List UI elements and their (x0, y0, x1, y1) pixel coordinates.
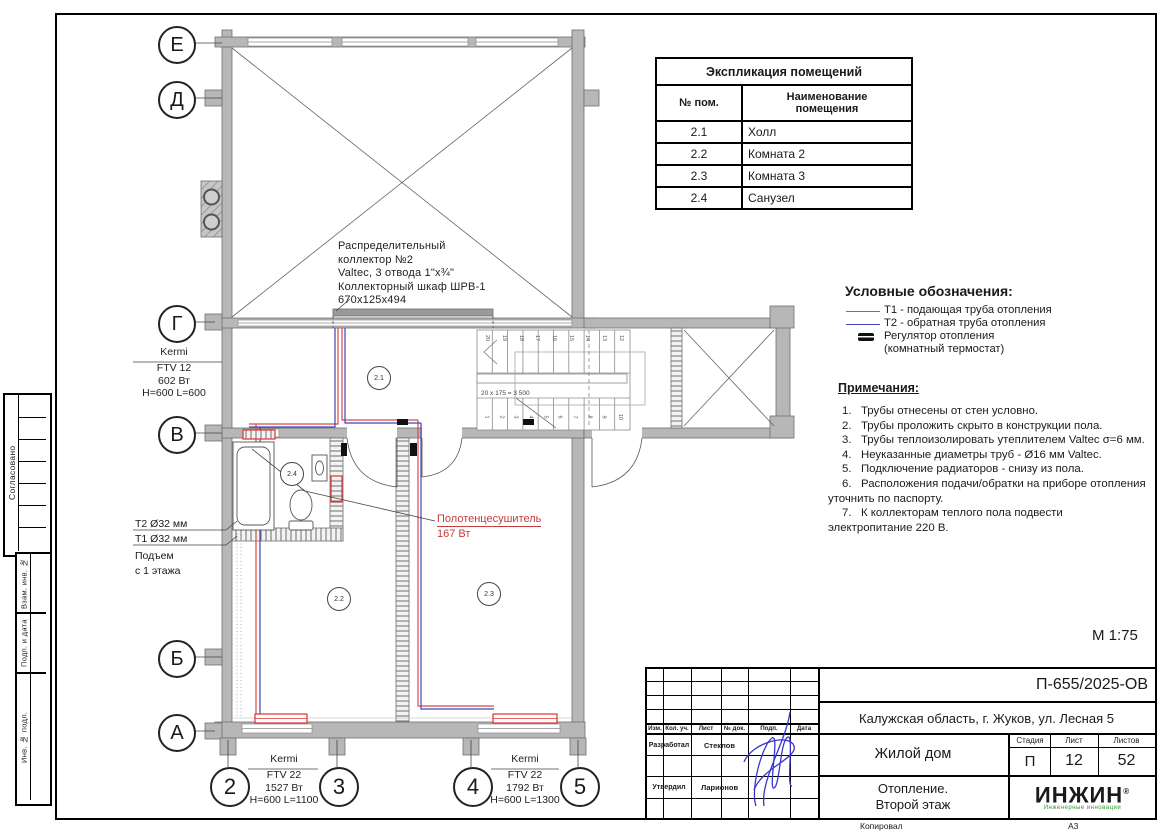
tb-stage-label: Стадия (1010, 733, 1050, 747)
axis-row-B: Б (158, 640, 196, 678)
tb-sheet-title-line2: Второй этаж (876, 797, 951, 813)
axis-label: А (170, 722, 183, 745)
repeat-item: 20 (484, 335, 490, 341)
room-number: 2.4 (656, 187, 742, 209)
repeat-item: 13 (601, 335, 607, 341)
legend-thermostat-label2: (комнатный термостат) (884, 343, 1004, 355)
axis-row-D: Д (158, 81, 196, 119)
radiator-label-room3: Kermi FTV 22 1792 Вт H=600 L=1300 (479, 753, 571, 806)
logo-reg-mark: ® (1123, 787, 1130, 796)
stair-lower-numbers: 12345678910 (479, 412, 629, 422)
riser-label: Подъем (135, 549, 187, 564)
tb-approved-role: Утвердил (647, 777, 691, 797)
radiator-power: 1792 Вт (479, 782, 571, 794)
t2-pipe-label: Т2 Ø32 мм (135, 517, 187, 532)
stair-upper-numbers: 201918171615141312 (479, 333, 629, 343)
room-name: Санузел (742, 187, 912, 209)
inv-label: Инв. № подл. (18, 674, 30, 800)
repeat-item: 15 (568, 335, 574, 341)
towel-rail-power: 167 Вт (437, 527, 541, 541)
axis-label: 5 (574, 774, 586, 800)
repeat-item: 17 (534, 335, 540, 341)
tb-col-list: Лист (691, 724, 721, 733)
tb-address: Калужская область, г. Жуков, ул. Лесная … (818, 703, 1155, 733)
tb-col-doc: № док. (721, 724, 748, 733)
room-name: Холл (742, 121, 912, 143)
axis-label: 3 (333, 774, 345, 800)
axis-row-A: А (158, 714, 196, 752)
room-name: Комната 3 (742, 165, 912, 187)
scale-label: М 1:75 (1092, 627, 1138, 644)
explication-col-num: № пом. (656, 85, 742, 121)
axis-row-V: В (158, 416, 196, 454)
radiator-brand: Kermi (241, 753, 327, 765)
towel-rail-label: Полотенцесушитель 167 Вт (437, 512, 541, 541)
repeat-item: 9 (601, 415, 607, 418)
t1-pipe-label: Т1 Ø32 мм (135, 532, 187, 547)
collector-line: Valtec, 3 отвода 1"х¾" (338, 267, 486, 281)
radiator-size: H=600 L=1300 (479, 794, 571, 806)
notes-title: Примечания: (838, 381, 919, 395)
axis-label: Б (170, 648, 183, 671)
repeat-item: 7 (571, 415, 577, 418)
notes-list: 1. Трубы отнесены от стен условно.2. Тру… (828, 404, 1150, 535)
radiator-size: H=600 L=600 (128, 387, 220, 399)
tb-sheet-value: 12 (1050, 747, 1098, 775)
room-number: 2.3 (656, 165, 742, 187)
repeat-item: 12 (618, 335, 624, 341)
repeat-item: 2. Трубы проложить скрыто в конструкции … (828, 419, 1150, 434)
tb-approved-name: Ларионов (691, 777, 748, 797)
logo-word: ИНЖИН (1035, 782, 1123, 807)
radiator-model: FTV 22 (241, 769, 327, 781)
tb-sheet-title: Отопление. Второй этаж (818, 775, 1008, 818)
radiator-power: 602 Вт (128, 375, 220, 387)
room-tag-label: 2.1 (374, 375, 384, 382)
tb-sheet-title-line1: Отопление. (878, 781, 948, 797)
collector-line: Коллекторный шкаф ШРВ-1 (338, 281, 486, 295)
repeat-item: 7. К коллекторам теплого пола подвести э… (828, 506, 1150, 535)
repeat-item: 2 (498, 415, 504, 418)
podp-label: Подп. и дата (18, 614, 30, 672)
collector-line: 670х125х494 (338, 294, 486, 308)
room-number: 2.1 (656, 121, 742, 143)
tb-col-podp: Подп. (748, 724, 790, 733)
repeat-item: 16 (551, 335, 557, 341)
tb-developed-name: Стеклов (691, 735, 748, 755)
agreed-label: Согласовано (6, 395, 18, 551)
tb-col-data: Дата (790, 724, 818, 733)
room-tag-label: 2.3 (484, 591, 494, 598)
axis-label: Г (172, 313, 183, 336)
side-stamp-agreed: Согласовано (3, 393, 52, 557)
logo-text: ИНЖИН® (1035, 782, 1130, 805)
company-logo: ИНЖИН® Инженерные инновации (1010, 775, 1155, 818)
explication-col-name: Наименование помещения (742, 85, 912, 121)
axis-label: 2 (224, 774, 236, 800)
axis-label: 4 (467, 774, 479, 800)
room-tag-label: 2.4 (287, 471, 297, 478)
repeat-item: 3 (513, 415, 519, 418)
radiator-model: FTV 22 (479, 769, 571, 781)
room-tag-label: 2.2 (334, 596, 344, 603)
tb-developed-role: Разработал (647, 735, 691, 755)
legend-t2-label: Т2 - обратная труба отопления (884, 317, 1045, 329)
room-tag-2-2: 2.2 (327, 587, 351, 611)
collector-line: Распределительный (338, 240, 486, 254)
tb-sheets-value: 52 (1098, 747, 1155, 775)
radiator-brand: Kermi (128, 346, 220, 358)
room-explication-table: Экспликация помещений № пом. Наименовани… (655, 57, 913, 210)
repeat-item: 10 (617, 414, 623, 420)
axis-label: Д (170, 89, 184, 112)
repeat-item: 1. Трубы отнесены от стен условно. (828, 404, 1150, 419)
repeat-item: 8 (586, 415, 592, 418)
collector-annotation: Распределительный коллектор №2 Valtec, 3… (338, 240, 486, 308)
legend-thermostat-label: Регулятор отопления (884, 330, 994, 342)
repeat-item: 1 (483, 415, 489, 418)
tb-sheet-label: Лист (1050, 733, 1098, 747)
radiator-label-room2: Kermi FTV 22 1527 Вт H=600 L=1100 (241, 753, 327, 806)
title-block: Изм. Кол. уч. Лист № док. Подп. Дата Раз… (645, 667, 1157, 820)
radiator-brand: Kermi (479, 753, 571, 765)
tb-object-name: Жилой дом (818, 733, 1008, 775)
tb-stage-value: П (1010, 747, 1050, 775)
room-number: 2.2 (656, 143, 742, 165)
repeat-item: 18 (518, 335, 524, 341)
axis-label: Е (170, 34, 183, 57)
room-tag-2-3: 2.3 (477, 582, 501, 606)
radiator-size: H=600 L=1100 (241, 794, 327, 806)
axis-row-G: Г (158, 305, 196, 343)
repeat-item: 5. Подключение радиаторов - снизу из пол… (828, 462, 1150, 477)
format-label: А3 (1068, 821, 1078, 831)
drawing-sheet: { "colors": { "t1_red": "#d84a4a", "t2_b… (0, 0, 1166, 833)
tb-doc-number: П-655/2025-ОВ (818, 669, 1148, 701)
repeat-item: 3. Трубы теплоизолировать утеплителем Va… (828, 433, 1150, 448)
riser-label: с 1 этажа (135, 564, 187, 579)
repeat-item: 14 (584, 335, 590, 341)
axis-row-E: Е (158, 26, 196, 64)
legend-t1-label: Т1 - подающая труба отопления (884, 304, 1052, 316)
repeat-item: 5 (542, 415, 548, 418)
stair-formula: 20 х 175 = 3 500 (481, 390, 530, 397)
room-tag-2-1: 2.1 (367, 366, 391, 390)
towel-rail-name: Полотенцесушитель (437, 512, 541, 527)
tb-col-kol: Кол. уч. (663, 724, 691, 733)
repeat-item: 6 (557, 415, 563, 418)
radiator-model: FTV 12 (128, 362, 220, 374)
explication-title: Экспликация помещений (656, 58, 912, 85)
thermostat-symbol (858, 333, 874, 341)
pipe-labels: Т2 Ø32 мм Т1 Ø32 мм Подъем с 1 этажа (135, 517, 187, 579)
vzam-label: Взам. инв. № (18, 554, 30, 612)
repeat-item: 4. Неуказанные диаметры труб - Ø16 мм Va… (828, 448, 1150, 463)
collector-line: коллектор №2 (338, 254, 486, 268)
room-name: Комната 2 (742, 143, 912, 165)
room-tag-2-4: 2.4 (280, 462, 304, 486)
radiator-power: 1527 Вт (241, 782, 327, 794)
repeat-item: 4 (527, 415, 533, 418)
radiator-label-left: Kermi FTV 12 602 Вт H=600 L=600 (128, 346, 220, 399)
axis-label: В (170, 424, 183, 447)
tb-sheets-label: Листов (1098, 733, 1155, 747)
tb-col-izm: Изм. (647, 724, 663, 733)
logo-subtitle: Инженерные инновации (1044, 805, 1122, 811)
repeat-item: 19 (501, 335, 507, 341)
legend-title: Условные обозначения: (845, 283, 1013, 299)
repeat-item: 6. Расположения подачи/обратки на прибор… (828, 477, 1150, 506)
kopiroval-label: Копировал (860, 821, 903, 831)
side-stamp-columns: Взам. инв. № Подп. и дата Инв. № подл. (15, 552, 52, 806)
t2-line-symbol (846, 324, 880, 325)
t1-line-symbol (846, 311, 880, 312)
